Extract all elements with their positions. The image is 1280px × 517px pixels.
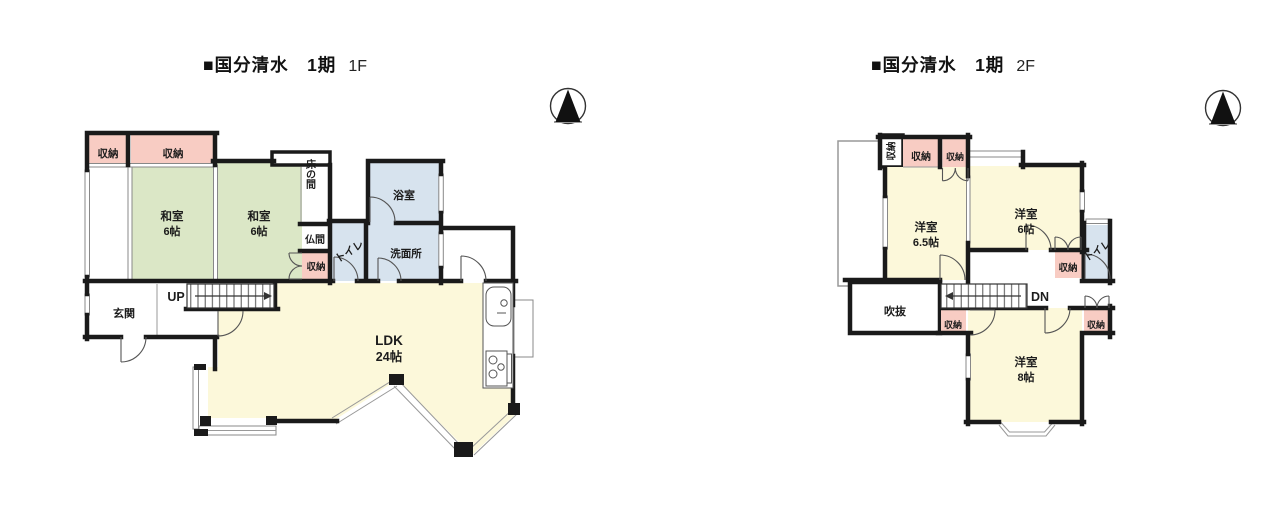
room-washitsu1-floor <box>128 165 215 281</box>
bedroom-divider-sliding <box>967 176 971 243</box>
floor-plan-1f: 収納 収納 和室 6帖 和室 6帖 床の間 仏間 収納 浴室 トイレ 洗面所 玄… <box>85 89 586 458</box>
toilet2-window <box>1086 219 1110 224</box>
label-ldk-name: LDK <box>375 333 403 348</box>
label-closet-e-2f: 収納 <box>1087 319 1105 330</box>
compass-north-icon-2f <box>1206 91 1241 126</box>
label-tokonoma: 床の間 <box>304 158 316 190</box>
label-washitsu2-name: 和室 <box>248 209 271 223</box>
bedroom3-left-window <box>966 354 971 380</box>
label-washitsu1-name: 和室 <box>161 209 184 223</box>
label-bedroom2-size: 6帖 <box>1017 222 1034 236</box>
kitchen-counter <box>483 283 513 388</box>
tokonoma-bump <box>272 152 330 165</box>
label-butsuma: 仏間 <box>305 234 325 246</box>
entrance-window <box>85 294 90 315</box>
washroom-window <box>439 232 444 268</box>
label-washitsu2-size: 6帖 <box>250 224 267 238</box>
label-bedroom1-size: 6.5帖 <box>913 235 939 249</box>
label-bedroom3-name: 洋室 <box>1015 355 1038 369</box>
label-closet-a-1f: 収納 <box>98 147 119 160</box>
label-ldk-size: 24帖 <box>376 349 403 364</box>
label-entrance: 玄関 <box>113 306 135 320</box>
kitchen-sink-icon <box>486 287 511 326</box>
bath-window <box>439 174 444 213</box>
label-closet-a-2f: 収納 <box>911 150 931 163</box>
label-closet-b-2f: 収納 <box>946 151 964 162</box>
label-washitsu1-size: 6帖 <box>163 224 180 238</box>
label-washroom: 洗面所 <box>390 247 422 260</box>
bedroom2-right-window <box>1080 190 1085 212</box>
bedroom2-top-window <box>969 151 1024 157</box>
floor-plan-2f: 収納 収納 収納 洋室 6.5帖 洋室 6帖 トイレ 収納 吹抜 DN 収納 収… <box>838 91 1241 437</box>
kitchen-bay-window <box>514 300 533 357</box>
label-closet-b-1f: 収納 <box>163 147 184 160</box>
label-closet-c-1f: 収納 <box>306 261 325 273</box>
bedroom3-bay-window <box>999 423 1055 437</box>
shoji-engawa-washitsu1 <box>128 165 132 281</box>
label-stairs-up: UP <box>167 290 184 304</box>
floor-plan-page: ■国分清水 1期1F ■国分清水 1期2F <box>0 0 1280 517</box>
label-closet-d-2f: 収納 <box>944 319 962 330</box>
stairs-2f <box>941 284 1027 308</box>
label-stairs-dn: DN <box>1031 290 1049 304</box>
room-bedroom2-floor <box>968 166 1082 250</box>
ldk-left-bay-window <box>193 367 199 429</box>
label-bedroom1-name: 洋室 <box>915 220 938 234</box>
label-closet-c-2f: 収納 <box>1058 262 1077 274</box>
compass-north-icon-1f <box>551 89 586 124</box>
room-engawa-floor <box>87 167 128 281</box>
label-bath: 浴室 <box>393 188 415 202</box>
label-closet-v-2f: 収納 <box>886 141 898 160</box>
label-bedroom3-size: 8帖 <box>1017 370 1034 384</box>
engawa-window <box>85 170 90 277</box>
label-void: 吹抜 <box>884 304 907 318</box>
bedroom1-window <box>883 196 888 249</box>
floor-plan-canvas: 収納 収納 和室 6帖 和室 6帖 床の間 仏間 収納 浴室 トイレ 洗面所 玄… <box>0 0 1280 517</box>
closet-sliding-doors <box>88 164 214 168</box>
label-bedroom2-name: 洋室 <box>1015 207 1038 221</box>
stairs-1f <box>187 284 274 308</box>
fusuma-washitsu1-washitsu2 <box>214 165 218 281</box>
